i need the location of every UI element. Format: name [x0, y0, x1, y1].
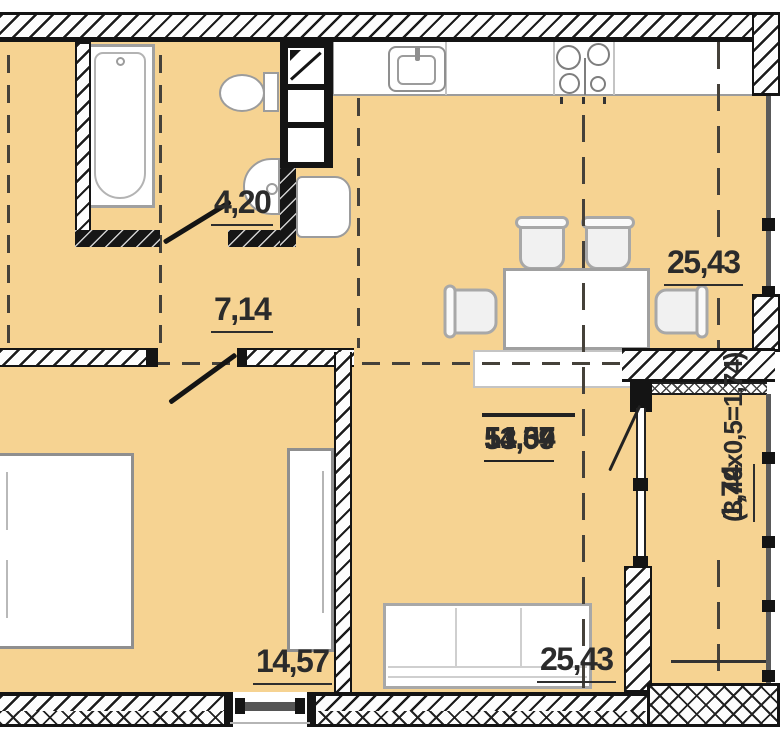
area-label-living: 25,43	[537, 641, 616, 683]
wall-pillar	[752, 12, 780, 96]
stove-burner	[590, 76, 606, 92]
interior-wall-vertical	[334, 352, 352, 692]
wall-pillar	[752, 294, 780, 352]
window-glazing	[766, 96, 771, 294]
window-mullion	[633, 478, 648, 491]
stove-mark	[582, 97, 585, 104]
stove-burner	[559, 73, 580, 94]
window-mullion	[762, 670, 775, 682]
stove-burner	[587, 43, 610, 66]
bathtub-drain	[116, 57, 125, 66]
chair-back	[515, 216, 569, 229]
window-mullion	[762, 218, 775, 231]
bed-pillow-line	[6, 472, 8, 530]
vent-shaft	[288, 48, 324, 84]
wall-end-cap	[237, 348, 247, 367]
window-mullion	[235, 698, 245, 714]
vent-flap	[290, 50, 301, 61]
zone-dash-line	[7, 55, 10, 345]
balcony-area-formula: (3,49x0,5=1,74)	[718, 353, 749, 522]
window-mullion	[295, 698, 305, 714]
bathroom-wall-left	[75, 42, 91, 238]
chair	[449, 289, 498, 335]
area-label-bedroom: 14,57	[253, 643, 332, 685]
kitchen-sink	[388, 46, 446, 92]
stove-burner	[556, 45, 581, 70]
zone-dash-line	[357, 98, 360, 348]
vent-shaft	[288, 128, 324, 162]
wardrobe	[287, 448, 334, 652]
zone-dash-line	[717, 298, 720, 348]
counter-divider	[553, 42, 555, 95]
bathtub	[85, 44, 155, 208]
dining-table	[503, 268, 650, 350]
chair	[655, 289, 704, 335]
chair-back	[696, 285, 709, 339]
window-sill-line	[230, 722, 310, 724]
balcony-top-wall	[622, 348, 775, 382]
sofa-divider	[455, 608, 457, 668]
zone-dash-line	[159, 55, 162, 348]
wall-pillar	[624, 566, 652, 692]
bedroom-window	[242, 702, 300, 711]
window-mullion	[762, 536, 775, 548]
stove-divider	[584, 58, 586, 95]
wall-end-cap	[146, 348, 158, 367]
vent-shaft-block	[280, 42, 333, 168]
kitchen-faucet	[415, 46, 420, 61]
fridge	[296, 176, 351, 238]
area-label-bathroom: 4,20	[211, 184, 273, 226]
summary-row: 53,09	[484, 415, 554, 462]
bed-pillow-line	[6, 560, 8, 618]
toilet-tank	[263, 72, 279, 112]
stove-mark	[560, 97, 563, 104]
bathroom-wall-bottom	[75, 230, 160, 247]
exterior-wall-top	[0, 12, 757, 42]
vent-shaft	[288, 90, 324, 122]
stove-mark	[603, 97, 606, 104]
area-summary-table: 14,57 51,34 53,09	[482, 413, 575, 417]
balcony-rail	[671, 660, 766, 663]
zone-dash-line	[582, 115, 585, 690]
window-mullion	[762, 452, 775, 464]
chair	[585, 221, 631, 270]
chair-back	[444, 285, 457, 339]
balcony-window-sill	[647, 382, 767, 395]
bed	[0, 453, 134, 649]
bathtub-inner	[94, 52, 146, 199]
chair	[519, 221, 565, 270]
chair-back	[581, 216, 635, 229]
balcony-bottom-wall	[647, 683, 780, 727]
floor-plan: 4,20 7,14 25,43 14,57 25,43 14,57 51,34 …	[0, 0, 780, 750]
window-mullion	[762, 600, 775, 612]
area-label-kitchen-dining: 25,43	[664, 244, 743, 286]
interior-wall	[0, 348, 158, 367]
zone-dash-line	[717, 42, 720, 248]
area-label-hall: 7,14	[211, 291, 273, 333]
counter-divider	[613, 42, 615, 95]
toilet-bowl	[219, 74, 265, 112]
sofa-divider	[520, 608, 522, 668]
wardrobe-door-line	[322, 471, 324, 613]
